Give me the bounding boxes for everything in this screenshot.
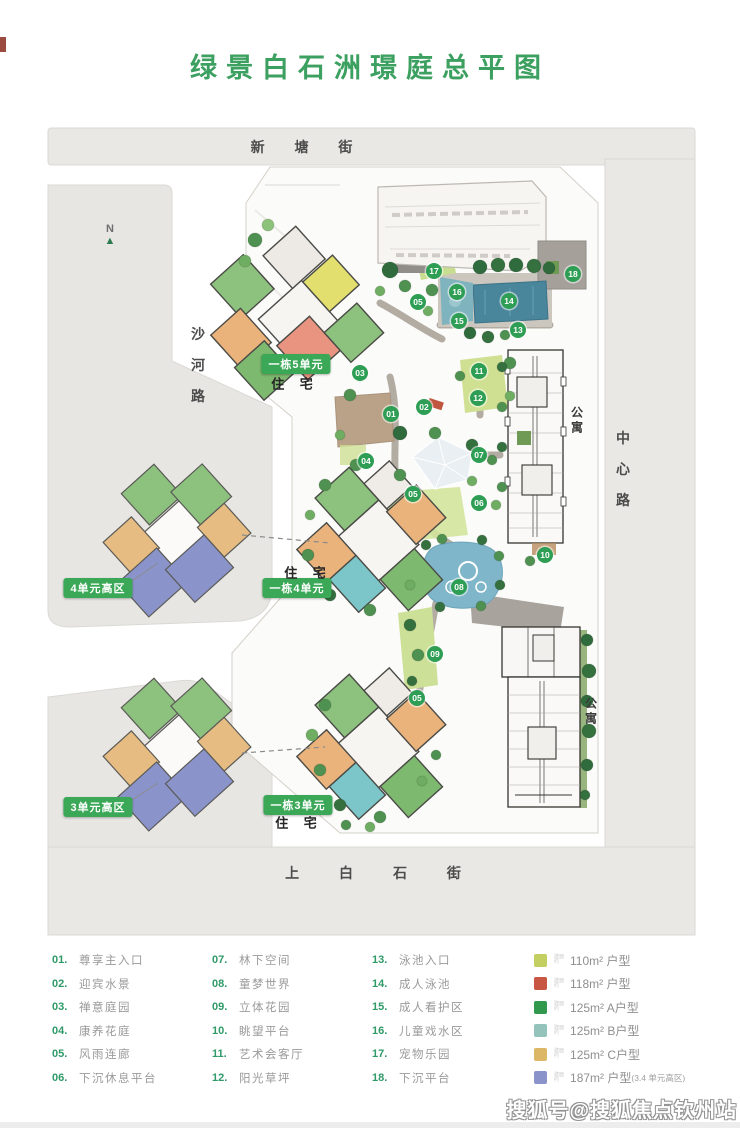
legend-item: 15.成人看护区: [372, 999, 464, 1015]
legend-col-2: 07.林下空间08.童梦世界09.立体花园10.眺望平台11.艺术会客厅12.阳…: [212, 952, 304, 1093]
legend-item-number: 17.: [372, 1048, 399, 1060]
unit-color-swatch: [534, 1024, 547, 1037]
unit-type-note: (3.4 单元高区): [631, 1072, 685, 1084]
map-marker-03: 03: [352, 365, 368, 381]
map-marker-16: 16: [449, 284, 465, 300]
legend-item-number: 07.: [212, 954, 239, 966]
unit-tiny-note: 建面约: [554, 979, 564, 989]
legend-item-text: 立体花园: [239, 999, 291, 1015]
unit-type-label: 110m² 户型: [570, 952, 630, 969]
unit-type-label: 125m² C户型: [570, 1046, 640, 1063]
legend-item-text: 禅意庭园: [79, 999, 131, 1015]
unit-type-label: 118m² 户型: [570, 975, 630, 992]
legend-item-text: 眺望平台: [239, 1023, 291, 1039]
unit-type-row: 建面约187m² 户型(3.4 单元高区): [534, 1070, 685, 1086]
unit-type-label: 125m² B户型: [570, 1022, 639, 1039]
legend-col-1: 01.尊享主入口02.迎宾水景03.禅意庭园04.康养花庭05.风雨连廊06.下…: [52, 952, 157, 1093]
legend-item: 01.尊享主入口: [52, 952, 157, 968]
legend-item-number: 04.: [52, 1025, 79, 1037]
unit-color-swatch: [534, 954, 547, 967]
unit-tiny-note: 建面约: [554, 955, 564, 965]
map-marker-10: 10: [537, 547, 553, 563]
legend-item-text: 下沉平台: [399, 1070, 451, 1086]
legend-item: 06.下沉休息平台: [52, 1070, 157, 1086]
map-marker-02: 02: [416, 399, 432, 415]
unit-tiny-note: 建面约: [554, 1049, 564, 1059]
unit-tiny-note: 建面约: [554, 1002, 564, 1012]
map-marker-12: 12: [470, 390, 486, 406]
legend-item-text: 风雨连廊: [79, 1046, 131, 1062]
map-marker-14: 14: [501, 293, 517, 309]
legend-item-text: 林下空间: [239, 952, 291, 968]
legend-item-number: 18.: [372, 1072, 399, 1084]
map-marker-06: 06: [471, 495, 487, 511]
legend-item-number: 15.: [372, 1001, 399, 1013]
legend-item: 16.儿童戏水区: [372, 1023, 464, 1039]
legend-item: 10.眺望平台: [212, 1023, 304, 1039]
map-marker-01: 01: [383, 406, 399, 422]
screenshot-root: 绿景白石洲璟庭总平图: [0, 0, 740, 1128]
legend-item-text: 泳池入口: [399, 952, 451, 968]
map-marker-08: 08: [451, 579, 467, 595]
legend-item-text: 尊享主入口: [79, 952, 144, 968]
map-marker-15: 15: [451, 313, 467, 329]
legend-item-number: 09.: [212, 1001, 239, 1013]
unit-color-swatch: [534, 1001, 547, 1014]
legend-item: 04.康养花庭: [52, 1023, 157, 1039]
legend-item-text: 成人泳池: [399, 976, 451, 992]
legend-item-number: 08.: [212, 978, 239, 990]
legend-item-text: 阳光草坪: [239, 1070, 291, 1086]
watermark: 搜狐号@搜狐焦点钦州站: [506, 1094, 737, 1123]
legend-item-number: 05.: [52, 1048, 79, 1060]
unit-tiny-note: 建面约: [554, 1026, 564, 1036]
map-marker-09: 09: [427, 646, 443, 662]
unit-type-label: 125m² A户型: [570, 999, 639, 1016]
legend-item: 18.下沉平台: [372, 1070, 464, 1086]
unit-type-row: 建面约118m² 户型: [534, 976, 685, 992]
unit-color-swatch: [534, 1048, 547, 1061]
map-marker-05: 05: [405, 486, 421, 502]
legend-item-number: 16.: [372, 1025, 399, 1037]
legend-item: 13.泳池入口: [372, 952, 464, 968]
map-marker-04: 04: [358, 453, 374, 469]
legend-item-text: 儿童戏水区: [399, 1023, 464, 1039]
unit-color-swatch: [534, 1071, 547, 1084]
map-marker-17: 17: [426, 263, 442, 279]
legend-item-text: 童梦世界: [239, 976, 291, 992]
legend-item-text: 成人看护区: [399, 999, 464, 1015]
unit-tiny-note: 建面约: [554, 1073, 564, 1083]
map-marker-11: 11: [471, 363, 487, 379]
legend-item: 09.立体花园: [212, 999, 304, 1015]
legend-item: 12.阳光草坪: [212, 1070, 304, 1086]
legend-item-text: 艺术会客厅: [239, 1046, 304, 1062]
legend-item-text: 下沉休息平台: [79, 1070, 157, 1086]
map-marker-18: 18: [565, 266, 581, 282]
map-markers: 0102030405050506070809101112131415161718: [40, 115, 700, 940]
legend-item: 14.成人泳池: [372, 976, 464, 992]
map-marker-05: 05: [410, 294, 426, 310]
map-marker-13: 13: [510, 322, 526, 338]
legend-item-text: 康养花庭: [79, 1023, 131, 1039]
legend-item: 17.宠物乐园: [372, 1046, 464, 1062]
bottom-strip: [0, 1122, 740, 1128]
legend-item-number: 01.: [52, 954, 79, 966]
unit-color-swatch: [534, 977, 547, 990]
legend-col-3: 13.泳池入口14.成人泳池15.成人看护区16.儿童戏水区17.宠物乐园18.…: [372, 952, 464, 1093]
map-marker-07: 07: [471, 447, 487, 463]
legend-item: 08.童梦世界: [212, 976, 304, 992]
unit-type-row: 建面约110m² 户型: [534, 952, 685, 968]
site-plan-map: 新 塘 街 沙河路 中心路 上 白 石 街 N ▲ 一栋5单元一栋4单元一栋3单…: [40, 115, 700, 940]
legend-item-number: 11.: [212, 1048, 239, 1060]
legend-item: 11.艺术会客厅: [212, 1046, 304, 1062]
unit-type-row: 建面约125m² A户型: [534, 999, 685, 1015]
legend-item-text: 迎宾水景: [79, 976, 131, 992]
unit-type-row: 建面约125m² C户型: [534, 1046, 685, 1062]
legend-item: 03.禅意庭园: [52, 999, 157, 1015]
map-marker-05: 05: [409, 690, 425, 706]
legend-item: 07.林下空间: [212, 952, 304, 968]
unit-type-row: 建面约125m² B户型: [534, 1023, 685, 1039]
page-title: 绿景白石洲璟庭总平图: [0, 46, 740, 85]
legend-item: 02.迎宾水景: [52, 976, 157, 992]
legend-item-number: 12.: [212, 1072, 239, 1084]
legend-item-number: 03.: [52, 1001, 79, 1013]
legend-item-number: 10.: [212, 1025, 239, 1037]
unit-type-label: 187m² 户型: [570, 1069, 631, 1086]
unit-type-legend: 建面约110m² 户型建面约118m² 户型建面约125m² A户型建面约125…: [534, 952, 685, 1093]
legend-item: 05.风雨连廊: [52, 1046, 157, 1062]
legend-item-text: 宠物乐园: [399, 1046, 451, 1062]
legend-item-number: 02.: [52, 978, 79, 990]
legend-item-number: 06.: [52, 1072, 79, 1084]
legend-section: 01.尊享主入口02.迎宾水景03.禅意庭园04.康养花庭05.风雨连廊06.下…: [40, 948, 700, 1100]
legend-item-number: 14.: [372, 978, 399, 990]
legend-item-number: 13.: [372, 954, 399, 966]
